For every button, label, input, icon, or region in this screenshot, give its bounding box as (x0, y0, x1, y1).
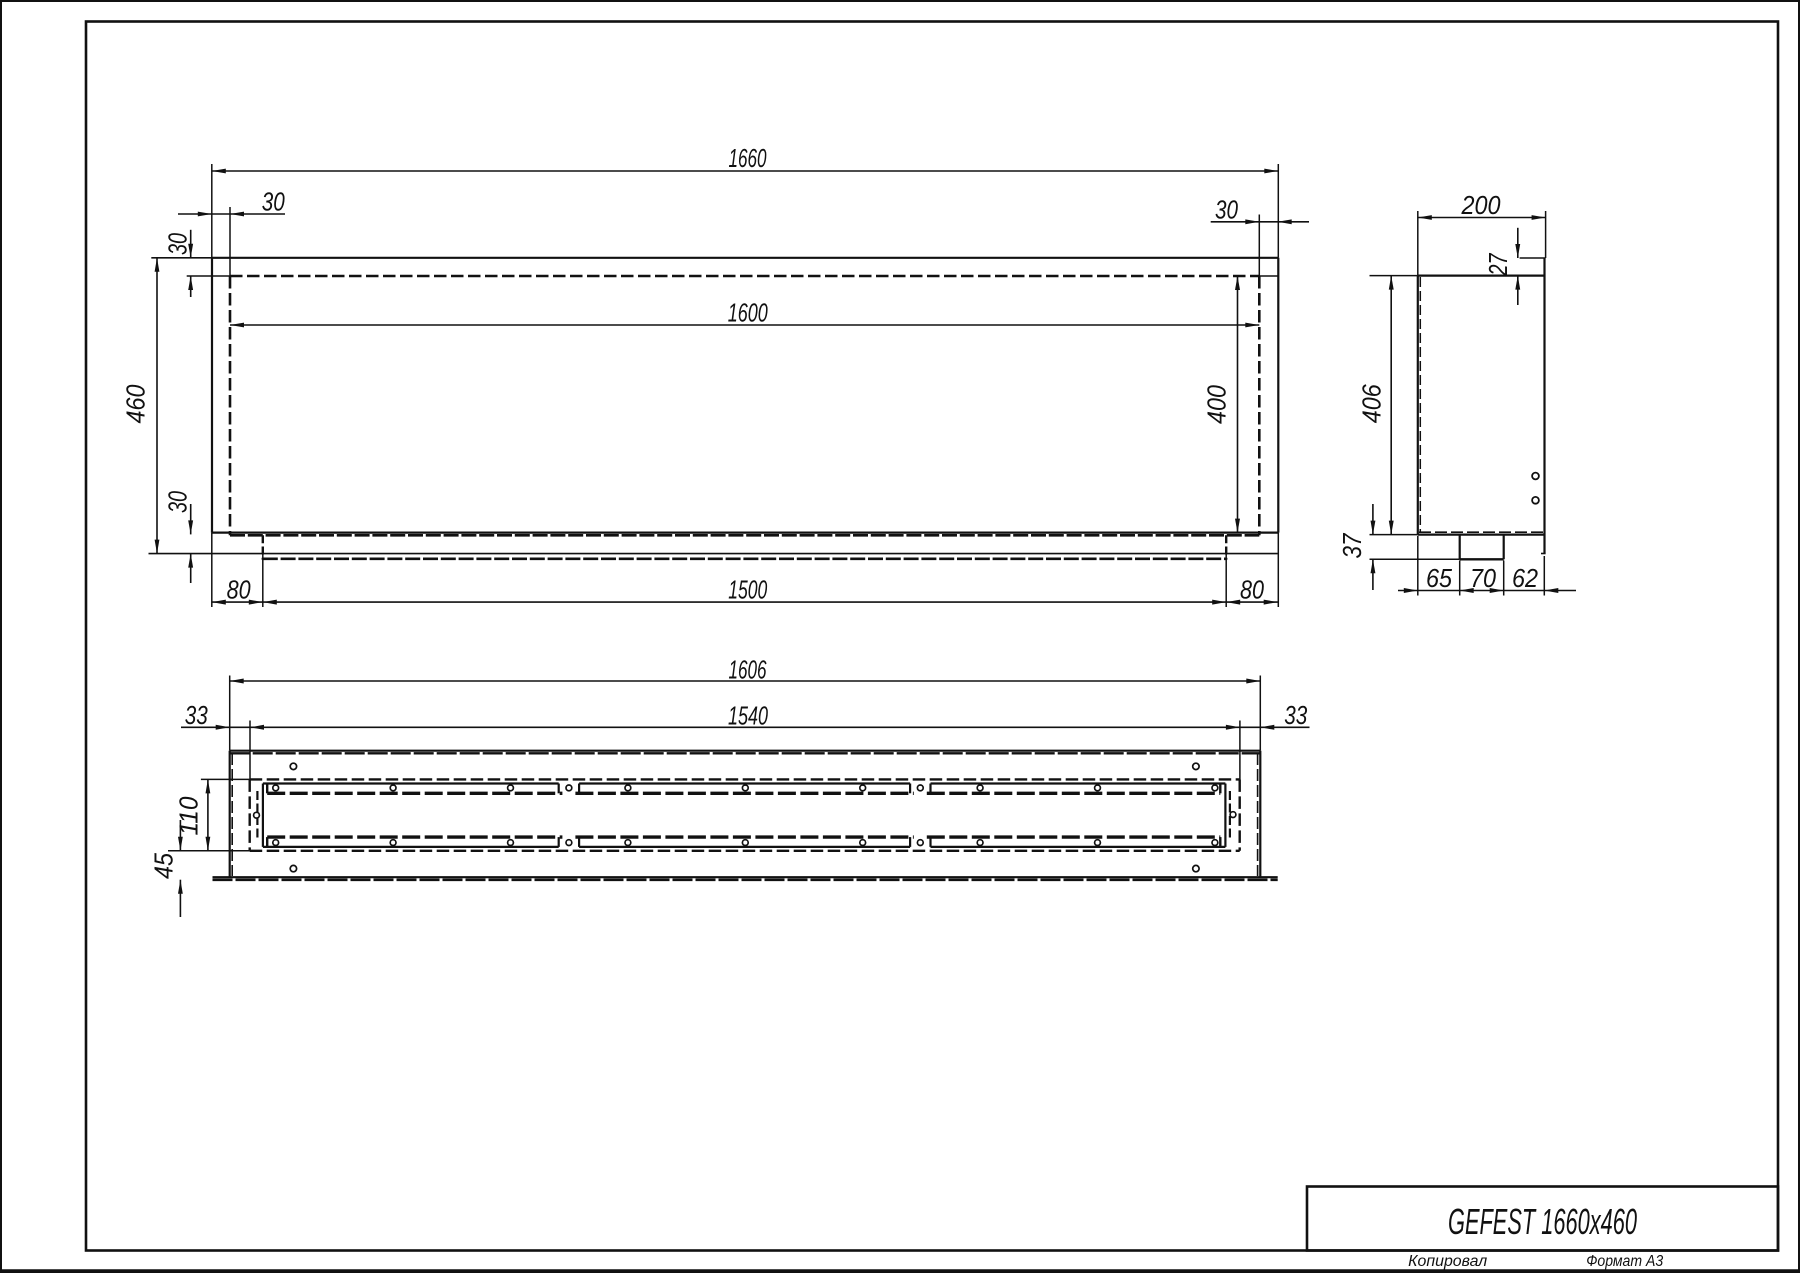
svg-text:37: 37 (1339, 533, 1367, 559)
svg-text:30: 30 (1215, 196, 1238, 224)
svg-text:45: 45 (151, 852, 179, 879)
svg-text:1600: 1600 (728, 299, 768, 327)
svg-text:80: 80 (1240, 577, 1264, 605)
svg-text:460: 460 (123, 385, 151, 424)
svg-text:33: 33 (185, 702, 208, 730)
svg-text:GEFEST 1660x460: GEFEST 1660x460 (1448, 1201, 1637, 1242)
svg-text:30: 30 (164, 233, 192, 255)
svg-text:406: 406 (1359, 384, 1387, 424)
svg-text:33: 33 (1284, 702, 1307, 730)
svg-text:62: 62 (1512, 565, 1538, 593)
svg-text:80: 80 (227, 577, 251, 605)
svg-text:400: 400 (1204, 385, 1232, 424)
svg-text:Формат А3: Формат А3 (1586, 1253, 1663, 1270)
svg-text:1660: 1660 (729, 145, 767, 173)
svg-text:1540: 1540 (728, 703, 768, 731)
svg-text:Копировал: Копировал (1408, 1253, 1487, 1270)
svg-text:30: 30 (262, 189, 285, 217)
svg-text:70: 70 (1470, 565, 1496, 593)
svg-text:65: 65 (1426, 565, 1453, 593)
svg-text:1500: 1500 (728, 577, 767, 605)
svg-text:200: 200 (1461, 192, 1501, 220)
svg-text:27: 27 (1485, 253, 1513, 276)
svg-text:1606: 1606 (729, 656, 768, 684)
svg-text:30: 30 (164, 491, 192, 513)
